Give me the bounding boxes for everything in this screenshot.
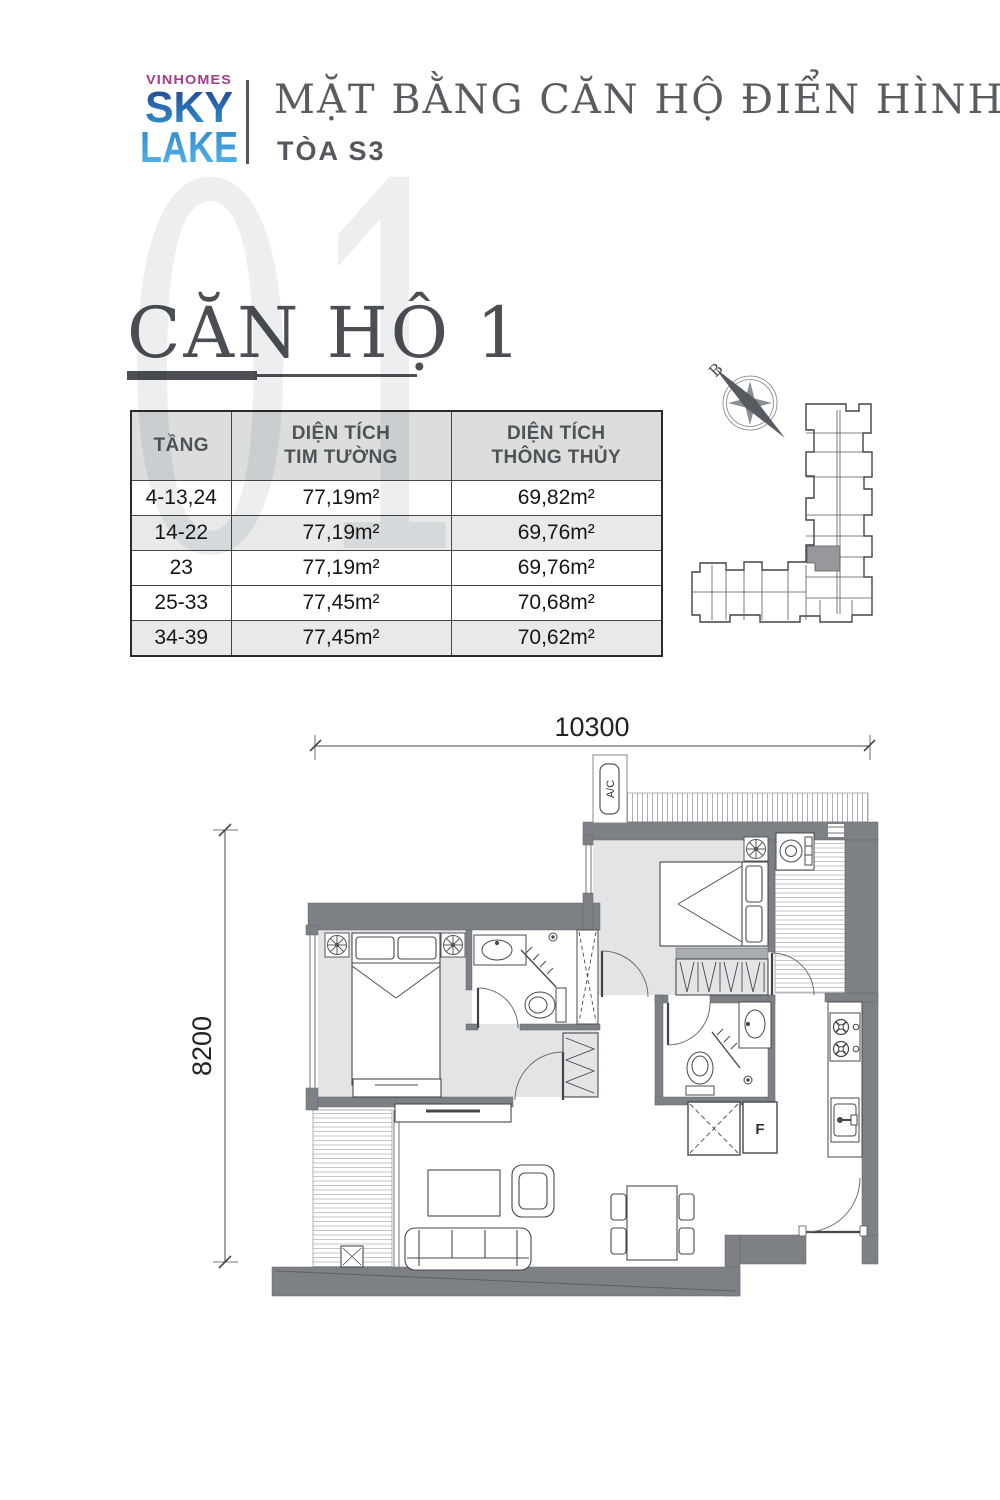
top-dimension: 10300 [310, 712, 875, 760]
ac-label: A/C [605, 780, 617, 798]
shower-icon [712, 1032, 740, 1068]
col-header-gross-line1: DIỆN TÍCH [234, 422, 449, 446]
cell-net: 69,82m² [451, 480, 662, 515]
cell-net: 69,76m² [451, 550, 662, 585]
cell-gross: 77,19m² [231, 515, 451, 550]
table-row: 23 77,19m² 69,76m² [131, 550, 662, 585]
table-row: 34-39 77,45m² 70,62m² [131, 620, 662, 656]
col-header-gross-line2: TIM TƯỜNG [234, 446, 449, 470]
col-header-net: DIỆN TÍCH THÔNG THỦY [451, 411, 662, 480]
cell-gross: 77,45m² [231, 585, 451, 620]
table-row: 14-22 77,19m² 69,76m² [131, 515, 662, 550]
table-row: 4-13,24 77,19m² 69,82m² [131, 480, 662, 515]
sink-icon [739, 1002, 771, 1048]
apartment-title: CĂN HỘ 1 [127, 298, 524, 368]
bathroom2 [686, 1002, 771, 1095]
cell-floor: 23 [131, 550, 231, 585]
col-header-gross: DIỆN TÍCH TIM TƯỜNG [231, 411, 451, 480]
cell-net: 70,62m² [451, 620, 662, 656]
cell-gross: 77,45m² [231, 620, 451, 656]
dimension-width-label: 10300 [554, 712, 629, 742]
toilet-icon [556, 988, 566, 1022]
living-furniture [353, 1079, 694, 1270]
table-row: 25-33 77,45m² 70,68m² [131, 585, 662, 620]
col-header-net-line2: THÔNG THỦY [454, 446, 660, 470]
fan-icon [744, 837, 768, 861]
building-key-plan [692, 404, 872, 622]
cell-floor: 25-33 [131, 585, 231, 620]
table-header-row: TẦNG DIỆN TÍCH TIM TƯỜNG DIỆN TÍCH THÔNG… [131, 411, 662, 480]
title-underline-thick [127, 371, 257, 380]
cell-floor: 14-22 [131, 515, 231, 550]
cell-net: 70,68m² [451, 585, 662, 620]
dining-set-icon [611, 1186, 694, 1260]
master-bed-icon [660, 862, 768, 946]
cell-floor: 34-39 [131, 620, 231, 656]
top-balcony-hatch [627, 793, 868, 822]
left-dimension: 8200 [187, 824, 238, 1268]
compass-icon: B [705, 359, 785, 438]
cell-net: 69,76m² [451, 515, 662, 550]
col-header-floor-label: TẦNG [134, 434, 229, 458]
dresser-icon [353, 1079, 441, 1097]
f-closet-label: F [755, 1121, 764, 1138]
col-header-net-line1: DIỆN TÍCH [454, 422, 660, 446]
sofa-icon [405, 1228, 531, 1270]
cell-gross: 77,19m² [231, 550, 451, 585]
coffee-table-icon [428, 1170, 500, 1216]
left-balcony-hatch [313, 1110, 392, 1267]
bed2-icon [352, 933, 440, 1085]
floor-plan: B 10300 [0, 0, 1000, 1500]
toilet-icon [686, 1086, 714, 1095]
col-header-floor: TẦNG [131, 411, 231, 480]
bathroom2-door [668, 1003, 710, 1045]
cell-gross: 77,19m² [231, 480, 451, 515]
fan-icon [325, 933, 349, 957]
dimension-height-label: 8200 [187, 1016, 217, 1076]
area-table: TẦNG DIỆN TÍCH TIM TƯỜNG DIỆN TÍCH THÔNG… [130, 410, 663, 657]
washer-icon [776, 833, 814, 870]
brochure-page: VINHOMES SKY LAKE MẶT BẰNG CĂN HỘ ĐIỂN H… [0, 0, 1000, 1500]
fan-icon [441, 933, 465, 957]
tv-cabinet-icon [395, 1104, 511, 1122]
ac-unit: A/C [593, 755, 627, 823]
cell-floor: 4-13,24 [131, 480, 231, 515]
entry-door [799, 1178, 867, 1236]
